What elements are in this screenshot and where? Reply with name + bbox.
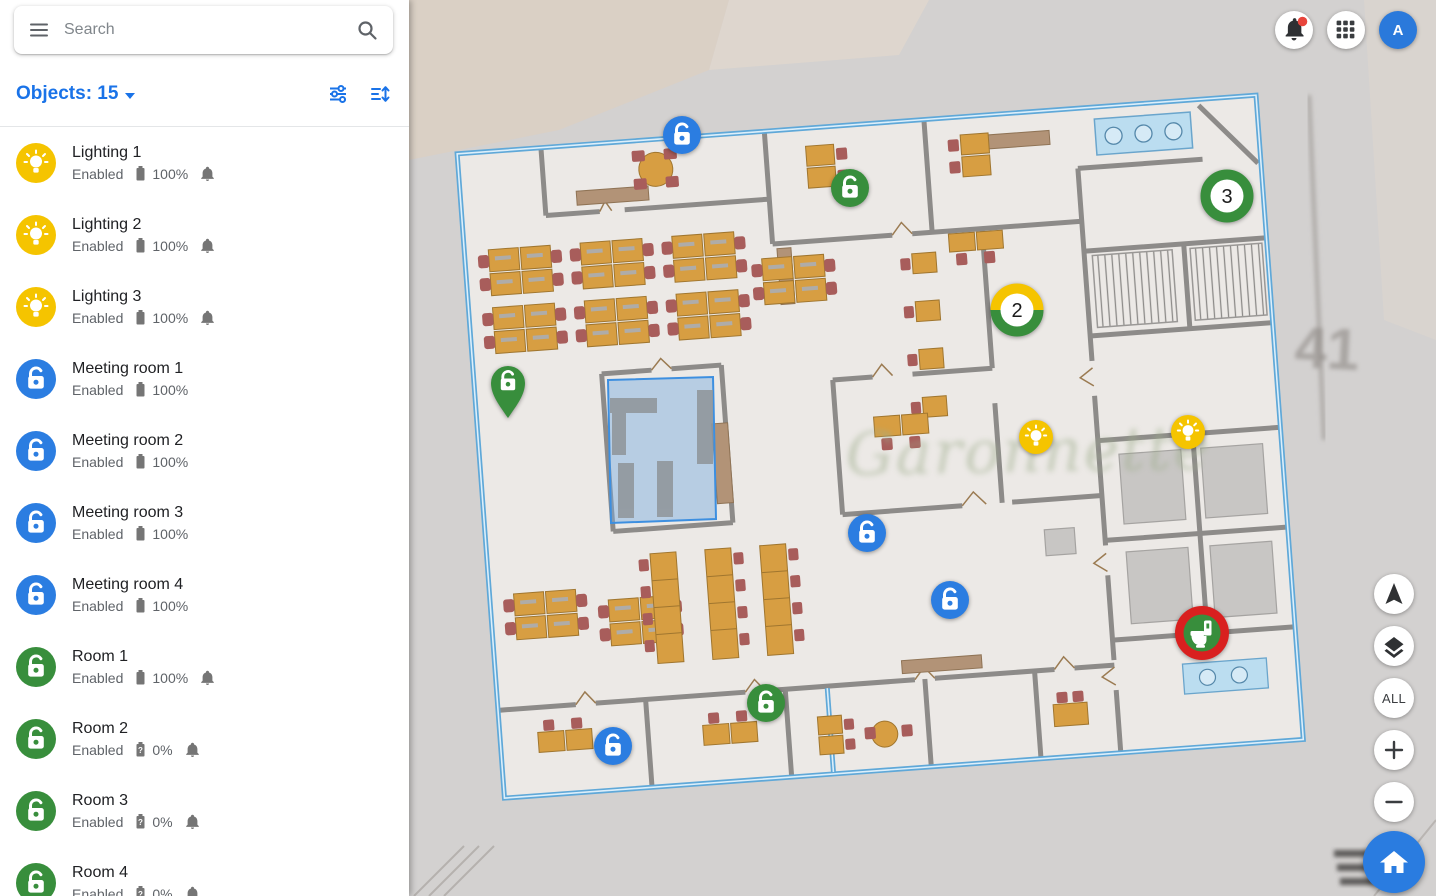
object-status: Enabled <box>72 526 123 542</box>
plus-icon <box>1374 730 1414 770</box>
notification-bell-icon <box>200 238 215 254</box>
object-name: Room 4 <box>72 864 200 882</box>
notification-bell-icon <box>185 742 200 758</box>
object-name: Lighting 2 <box>72 216 215 234</box>
lightbulb-icon <box>16 143 56 183</box>
sidebar: Objects: 15 <box>0 0 409 896</box>
battery-full-icon <box>135 165 146 182</box>
battery-full-icon <box>135 597 146 614</box>
marker-lighting[interactable] <box>1018 419 1054 460</box>
tune-icon <box>327 83 349 105</box>
sort-icon <box>369 83 391 105</box>
object-status: Enabled <box>72 310 123 326</box>
home-button[interactable] <box>1363 831 1425 893</box>
filter-button[interactable] <box>325 81 351 107</box>
svg-text:?: ? <box>138 890 143 896</box>
marker-cluster-mixed[interactable]: 2 <box>989 282 1045 343</box>
list-item-lighting-3[interactable]: Lighting 3 Enabled 100% <box>0 271 409 343</box>
marker-lock-meeting-room[interactable] <box>930 580 970 625</box>
marker-lock-room[interactable] <box>830 168 870 213</box>
battery-full-icon <box>135 669 146 686</box>
battery-unknown-icon: ? <box>135 885 146 896</box>
minus-icon <box>1374 782 1414 822</box>
object-status: Enabled <box>72 454 123 470</box>
search-icon <box>355 18 379 42</box>
list-item-room-2[interactable]: Room 2 Enabled ? 0% <box>0 703 409 775</box>
object-name: Room 3 <box>72 792 200 810</box>
avatar-letter: A <box>1393 22 1404 39</box>
object-status: Enabled <box>72 814 123 830</box>
app-window: Objects: 15 <box>0 0 1436 896</box>
marker-cluster-rooms[interactable]: 3 <box>1199 168 1255 229</box>
lock-open-icon <box>16 431 56 471</box>
battery-percent: 0% <box>152 886 172 896</box>
battery-full-icon <box>135 309 146 326</box>
battery-percent: 100% <box>152 238 188 254</box>
object-status: Enabled <box>72 238 123 254</box>
object-name: Room 2 <box>72 720 200 738</box>
objects-count-dropdown[interactable]: Objects: 15 <box>16 83 135 105</box>
menu-button[interactable] <box>26 17 52 43</box>
marker-pin-lock-selected[interactable] <box>485 360 531 425</box>
list-item-room-1[interactable]: Room 1 Enabled 100% <box>0 631 409 703</box>
home-icon <box>1363 831 1425 893</box>
list-item-room-4[interactable]: Room 4 Enabled ? 0% <box>0 847 409 896</box>
object-name: Lighting 1 <box>72 144 215 162</box>
battery-full-icon <box>135 453 146 470</box>
compass-button[interactable] <box>1374 574 1414 614</box>
notification-bell-icon <box>185 886 200 896</box>
notification-bell-icon <box>200 310 215 326</box>
marker-toilet-alert[interactable] <box>1173 604 1231 667</box>
map-area[interactable]: Garonnette 41 <box>409 0 1436 896</box>
search-bar <box>14 6 393 54</box>
marker-lighting[interactable] <box>1170 414 1206 455</box>
objects-count-label: Objects: 15 <box>16 83 118 105</box>
battery-percent: 100% <box>152 310 188 326</box>
battery-full-icon <box>135 237 146 254</box>
battery-percent: 0% <box>152 742 172 758</box>
battery-percent: 100% <box>152 382 188 398</box>
lock-open-icon <box>16 503 56 543</box>
battery-unknown-icon: ? <box>135 813 146 830</box>
battery-full-icon <box>135 525 146 542</box>
object-status: Enabled <box>72 382 123 398</box>
lock-open-icon <box>16 647 56 687</box>
hamburger-icon <box>28 19 50 41</box>
object-name: Meeting room 2 <box>72 432 188 450</box>
list-item-meeting-room-4[interactable]: Meeting room 4 Enabled 100% <box>0 559 409 631</box>
list-item-meeting-room-2[interactable]: Meeting room 2 Enabled 100% <box>0 415 409 487</box>
lock-open-icon <box>16 719 56 759</box>
selected-zone[interactable] <box>608 377 716 523</box>
object-status: Enabled <box>72 166 123 182</box>
marker-lock-room[interactable] <box>746 683 786 728</box>
notification-bell-icon <box>185 814 200 830</box>
show-all-button[interactable]: ALL <box>1374 678 1414 718</box>
battery-full-icon <box>135 381 146 398</box>
notification-dot <box>1298 17 1308 27</box>
object-status: Enabled <box>72 670 123 686</box>
search-button[interactable] <box>353 16 381 44</box>
lightbulb-icon <box>16 215 56 255</box>
all-label: ALL <box>1382 691 1406 706</box>
lock-open-icon <box>16 575 56 615</box>
battery-percent: 0% <box>152 814 172 830</box>
marker-lock-meeting-room[interactable] <box>662 115 702 160</box>
object-name: Meeting room 1 <box>72 360 188 378</box>
navigation-arrow-icon <box>1374 574 1414 614</box>
battery-percent: 100% <box>152 598 188 614</box>
lock-open-icon <box>16 359 56 399</box>
objects-header-row: Objects: 15 <box>0 62 409 126</box>
notification-bell-icon <box>200 166 215 182</box>
notifications-button[interactable] <box>1275 11 1313 49</box>
object-status: Enabled <box>72 598 123 614</box>
layers-icon <box>1374 626 1414 666</box>
zoom-out-button[interactable] <box>1374 782 1414 822</box>
object-status: Enabled <box>72 886 123 896</box>
battery-percent: 100% <box>152 670 188 686</box>
marker-lock-meeting-room[interactable] <box>847 513 887 558</box>
object-name: Lighting 3 <box>72 288 215 306</box>
objects-list: Lighting 1 Enabled 100% Lighting 2 <box>0 127 409 896</box>
lightbulb-icon <box>16 287 56 327</box>
list-item-lighting-1[interactable]: Lighting 1 Enabled 100% <box>0 127 409 199</box>
svg-text:3: 3 <box>1221 186 1232 208</box>
svg-text:?: ? <box>138 746 143 755</box>
object-name: Meeting room 4 <box>72 576 188 594</box>
list-item-room-3[interactable]: Room 3 Enabled ? 0% <box>0 775 409 847</box>
layers-button[interactable] <box>1374 626 1414 666</box>
battery-percent: 100% <box>152 166 188 182</box>
list-item-meeting-room-1[interactable]: Meeting room 1 Enabled 100% <box>0 343 409 415</box>
svg-text:?: ? <box>138 818 143 827</box>
chevron-down-icon <box>125 93 135 99</box>
object-name: Meeting room 3 <box>72 504 188 522</box>
object-status: Enabled <box>72 742 123 758</box>
account-avatar[interactable]: A <box>1379 11 1417 49</box>
parcel-number: 41 <box>1293 315 1361 383</box>
floor-plan: Garonnette 41 <box>409 0 1436 896</box>
notification-bell-icon <box>200 670 215 686</box>
search-input[interactable] <box>64 21 353 39</box>
bell-icon <box>1275 11 1313 49</box>
svg-text:2: 2 <box>1011 300 1022 322</box>
battery-unknown-icon: ? <box>135 741 146 758</box>
marker-lock-meeting-room[interactable] <box>593 726 633 771</box>
lock-open-icon <box>16 791 56 831</box>
list-item-lighting-2[interactable]: Lighting 2 Enabled 100% <box>0 199 409 271</box>
battery-percent: 100% <box>152 526 188 542</box>
apps-grid-icon <box>1327 11 1365 49</box>
object-name: Room 1 <box>72 648 215 666</box>
battery-percent: 100% <box>152 454 188 470</box>
apps-button[interactable] <box>1327 11 1365 49</box>
zoom-in-button[interactable] <box>1374 730 1414 770</box>
sort-button[interactable] <box>367 81 393 107</box>
list-item-meeting-room-3[interactable]: Meeting room 3 Enabled 100% <box>0 487 409 559</box>
lock-open-icon <box>16 863 56 896</box>
